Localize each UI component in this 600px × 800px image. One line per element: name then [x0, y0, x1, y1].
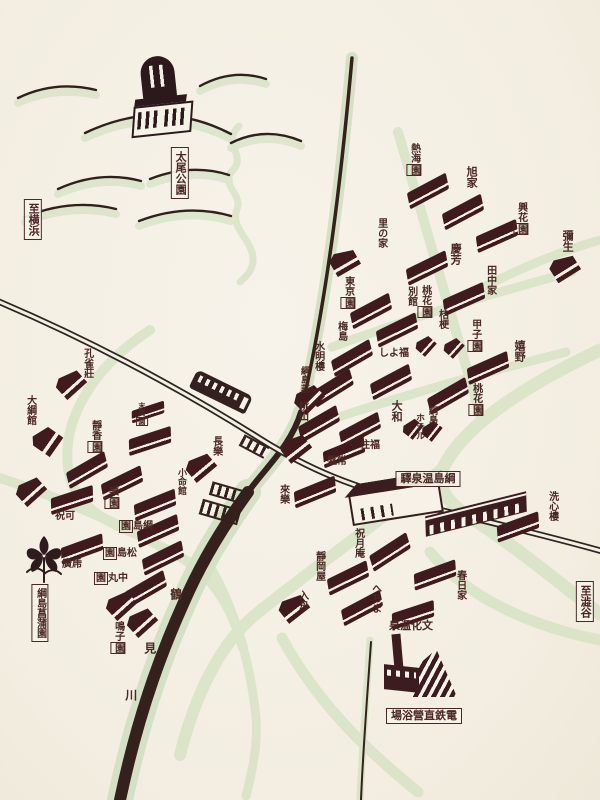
label-tokaen-east: 桃花園	[470, 383, 481, 417]
label-senshinro: 洗心樓	[546, 491, 557, 521]
label-kokaen: 興花園	[515, 202, 526, 236]
label-kujakuso: 孔雀莊	[81, 348, 92, 378]
factory-body	[384, 664, 419, 693]
label-asahiya: 旭家	[465, 166, 477, 188]
label-shizuokaya: 靜岡屋	[313, 551, 324, 581]
label-banjo: 盤常	[327, 456, 347, 467]
label-tanakaya: 田中家	[484, 265, 495, 295]
label-sumifuku: 住福	[360, 440, 380, 451]
label-tsunashima-hotel-1: 綱島	[427, 406, 437, 424]
label-small-inn: 末廣園	[137, 402, 145, 427]
label-momoyama: 桃山	[296, 401, 307, 421]
label-suimeiro: 水明樓	[312, 341, 323, 371]
label-shoyofuku: しよ福	[379, 348, 409, 359]
label-irifune: 入舟	[296, 590, 307, 610]
tower-base	[132, 101, 194, 139]
label-sign-dentetsu-bathhouse: 場浴營直鉄電	[386, 708, 462, 724]
bathhouse-factory-icon	[384, 634, 462, 704]
label-atamien: 熱海園	[408, 143, 419, 177]
label-hechima: へちま	[369, 583, 380, 613]
label-river-char-mi: 見	[142, 642, 155, 654]
label-umejima: 梅島	[335, 321, 346, 341]
label-koshien: 甲子園	[469, 319, 480, 353]
label-taikokan: 大綱館	[24, 395, 35, 425]
label-sign-tsunashima-iris-garden: 綱島菖蒲園	[31, 584, 48, 642]
label-ureshino: 嬉野	[513, 340, 525, 362]
label-hirotora: 廣乕	[62, 559, 82, 570]
label-nakamaruen: 園丸中	[94, 573, 128, 584]
label-bunka-onsen: 泉温化文	[389, 620, 433, 632]
label-river-char-kawa: 川	[123, 689, 136, 701]
tower-dome	[139, 54, 177, 99]
park-tower-icon	[124, 53, 196, 139]
iris-flower-icon	[22, 534, 66, 584]
label-seikoen: 靜香園	[89, 420, 100, 454]
label-narukoen: 鳴子園	[112, 621, 123, 655]
label-keiho: 慶芳	[449, 243, 461, 265]
label-yayoi: 彌生	[561, 230, 573, 252]
label-tokaen-bekkan-main: 桃花園	[419, 285, 430, 319]
tsunashima-onsen-map: 至横浜太尾公園驛泉温島綱綱島菖蒲園場浴營直鉄電至澁谷熱海園旭家興花園彌生里の家慶…	[0, 0, 600, 800]
label-shomeikan: 小命館	[176, 468, 186, 495]
label-sign-tsunashima-onsen-station: 驛泉温島綱	[396, 471, 461, 487]
label-choraku: 長樂	[210, 436, 221, 456]
label-river-char-tsuru: 鶴	[168, 588, 181, 600]
label-kikyo: 桔梗	[436, 309, 447, 329]
label-sign-to-yokohama: 至横浜	[24, 199, 42, 240]
label-sign-to-shibuya: 至澁谷	[576, 581, 594, 622]
label-sato-no-ie: 里の家	[375, 218, 386, 248]
label-tsunashimaso: 綱島莊	[299, 366, 309, 393]
label-sign-taio-park: 太尾公園	[171, 147, 189, 199]
label-shukuka: 祝可	[55, 511, 75, 522]
label-tokyoen: 東京園	[342, 276, 353, 310]
label-shukugetsuan: 祝月庵	[352, 528, 363, 558]
label-matsushimaen: 園島松	[103, 548, 137, 559]
label-yamato: 大和	[390, 400, 402, 422]
label-rakuen: 樂園	[106, 486, 117, 510]
label-tsunashima-hotel-2: ホテル	[414, 413, 424, 440]
label-tokaen-bekkan-annex: 別館	[405, 286, 416, 306]
label-tsunashimaen: 園島綱	[119, 521, 153, 532]
label-rairaku: 來樂	[277, 484, 288, 504]
label-kasugaya: 春日家	[454, 570, 465, 600]
